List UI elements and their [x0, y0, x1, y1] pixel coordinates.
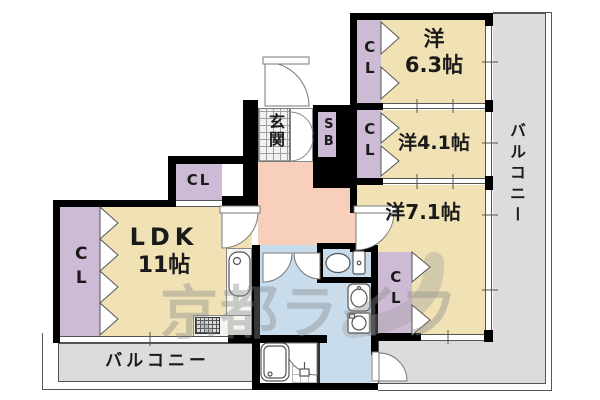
closet-label: CL	[360, 120, 379, 162]
wall-segment	[243, 100, 258, 212]
wall-segment	[313, 112, 318, 162]
shower-area	[292, 343, 317, 383]
bath-partition	[317, 343, 320, 383]
hallway	[258, 188, 357, 245]
balcony-line	[493, 13, 546, 14]
wall-segment	[484, 330, 493, 342]
wall-segment	[252, 383, 378, 390]
wall-segment	[313, 105, 357, 112]
sliding-window-icon	[421, 334, 490, 341]
wall-segment	[53, 200, 60, 343]
entrance-step	[290, 108, 313, 162]
wall-segment	[317, 277, 371, 283]
entrance-door-icon	[265, 62, 309, 106]
shoe-box-label: SB	[320, 117, 336, 151]
balcony-line	[378, 341, 379, 383]
washroom	[260, 245, 371, 341]
entrance-label: 玄関	[265, 113, 285, 149]
balcony-bottom-right	[378, 341, 494, 383]
outer-frame-line	[42, 389, 258, 390]
wall-segment	[252, 335, 327, 343]
sliding-window-icon	[60, 336, 228, 343]
room-label-line: 11帖	[104, 252, 224, 280]
closet-label: CL	[360, 38, 379, 80]
sliding-partition	[383, 178, 485, 184]
room-label-line: LDK	[104, 222, 224, 252]
floor-plan: 洋 6.3帖 洋4.1帖 洋7.1帖 LDK 11帖 CL CL CL CL C…	[0, 0, 600, 400]
room-label-western-4-1: 洋4.1帖	[381, 132, 487, 156]
outer-frame-line	[493, 12, 552, 13]
balcony-label-bottom: バルコニー	[60, 351, 255, 372]
hallway	[258, 160, 313, 188]
wall-segment	[53, 200, 175, 207]
entrance-door-leaf	[263, 57, 309, 64]
wall-segment	[485, 176, 493, 190]
wall-segment	[371, 337, 378, 355]
wall-segment	[371, 245, 378, 341]
room-label-western-7-1: 洋7.1帖	[363, 200, 483, 225]
wall-segment	[485, 100, 493, 112]
room-label-western-6-3: 洋 6.3帖	[383, 26, 485, 79]
closet-label: CL	[386, 268, 405, 310]
closet-label: CL	[176, 171, 222, 190]
sliding-partition	[383, 103, 485, 109]
closet-sliding-door	[176, 200, 222, 207]
room-label-ldk: LDK 11帖	[104, 222, 224, 280]
wall-segment	[313, 157, 357, 188]
balcony-line	[545, 13, 546, 384]
wall-segment	[317, 243, 371, 249]
gas-stove-icon	[195, 317, 220, 334]
outer-frame-line	[378, 390, 552, 391]
wall-segment	[336, 112, 350, 157]
wall-segment	[371, 333, 421, 341]
wall-segment	[485, 13, 493, 26]
outer-frame-line	[551, 13, 552, 391]
room-label-line: 洋	[383, 26, 485, 52]
wall-segment	[350, 13, 493, 20]
wall-segment	[168, 156, 243, 164]
balcony-label-right: バルコニー	[506, 122, 526, 227]
wall-segment	[222, 196, 243, 208]
room-label-line: 6.3帖	[383, 52, 485, 78]
balcony-line	[378, 383, 546, 384]
closet-label: CL	[70, 244, 91, 292]
washroom-lower	[320, 337, 371, 383]
outer-frame-line	[42, 333, 43, 390]
